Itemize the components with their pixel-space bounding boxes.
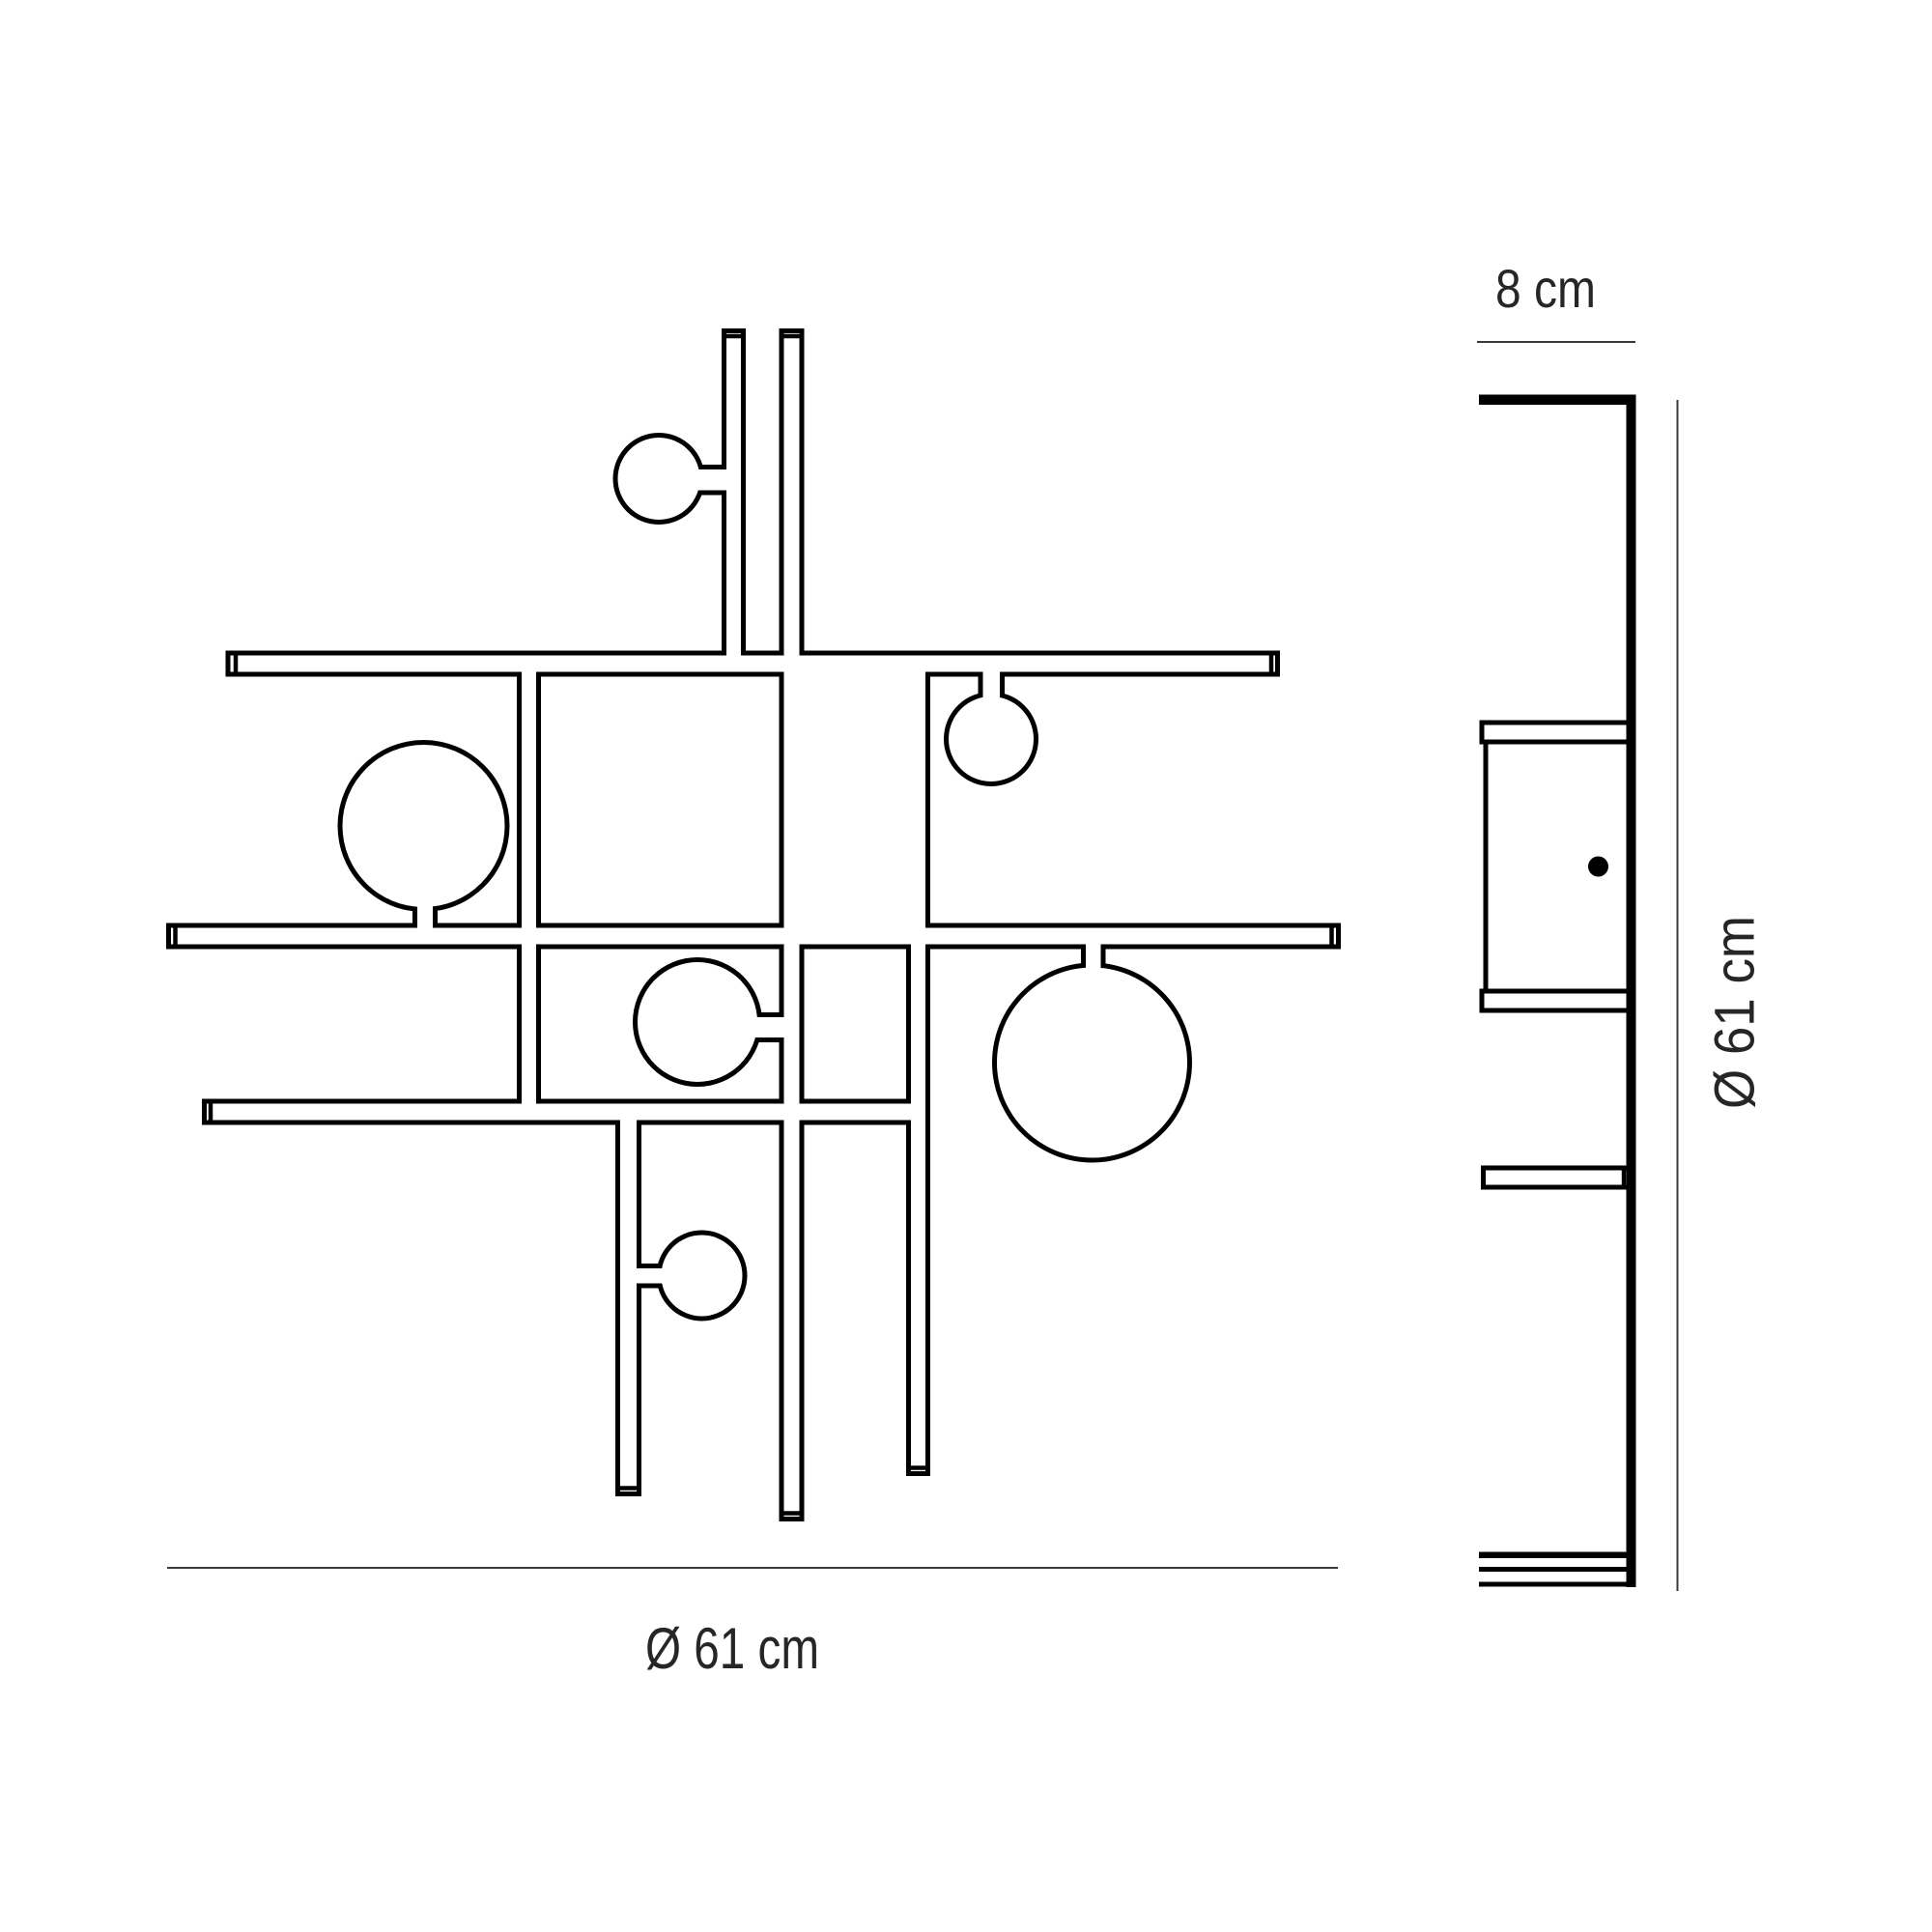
svg-text:Ø 61 cm: Ø 61 cm [1704,916,1767,1109]
svg-text:Ø 61 cm: Ø 61 cm [645,1616,819,1681]
svg-text:8 cm: 8 cm [1495,258,1596,319]
